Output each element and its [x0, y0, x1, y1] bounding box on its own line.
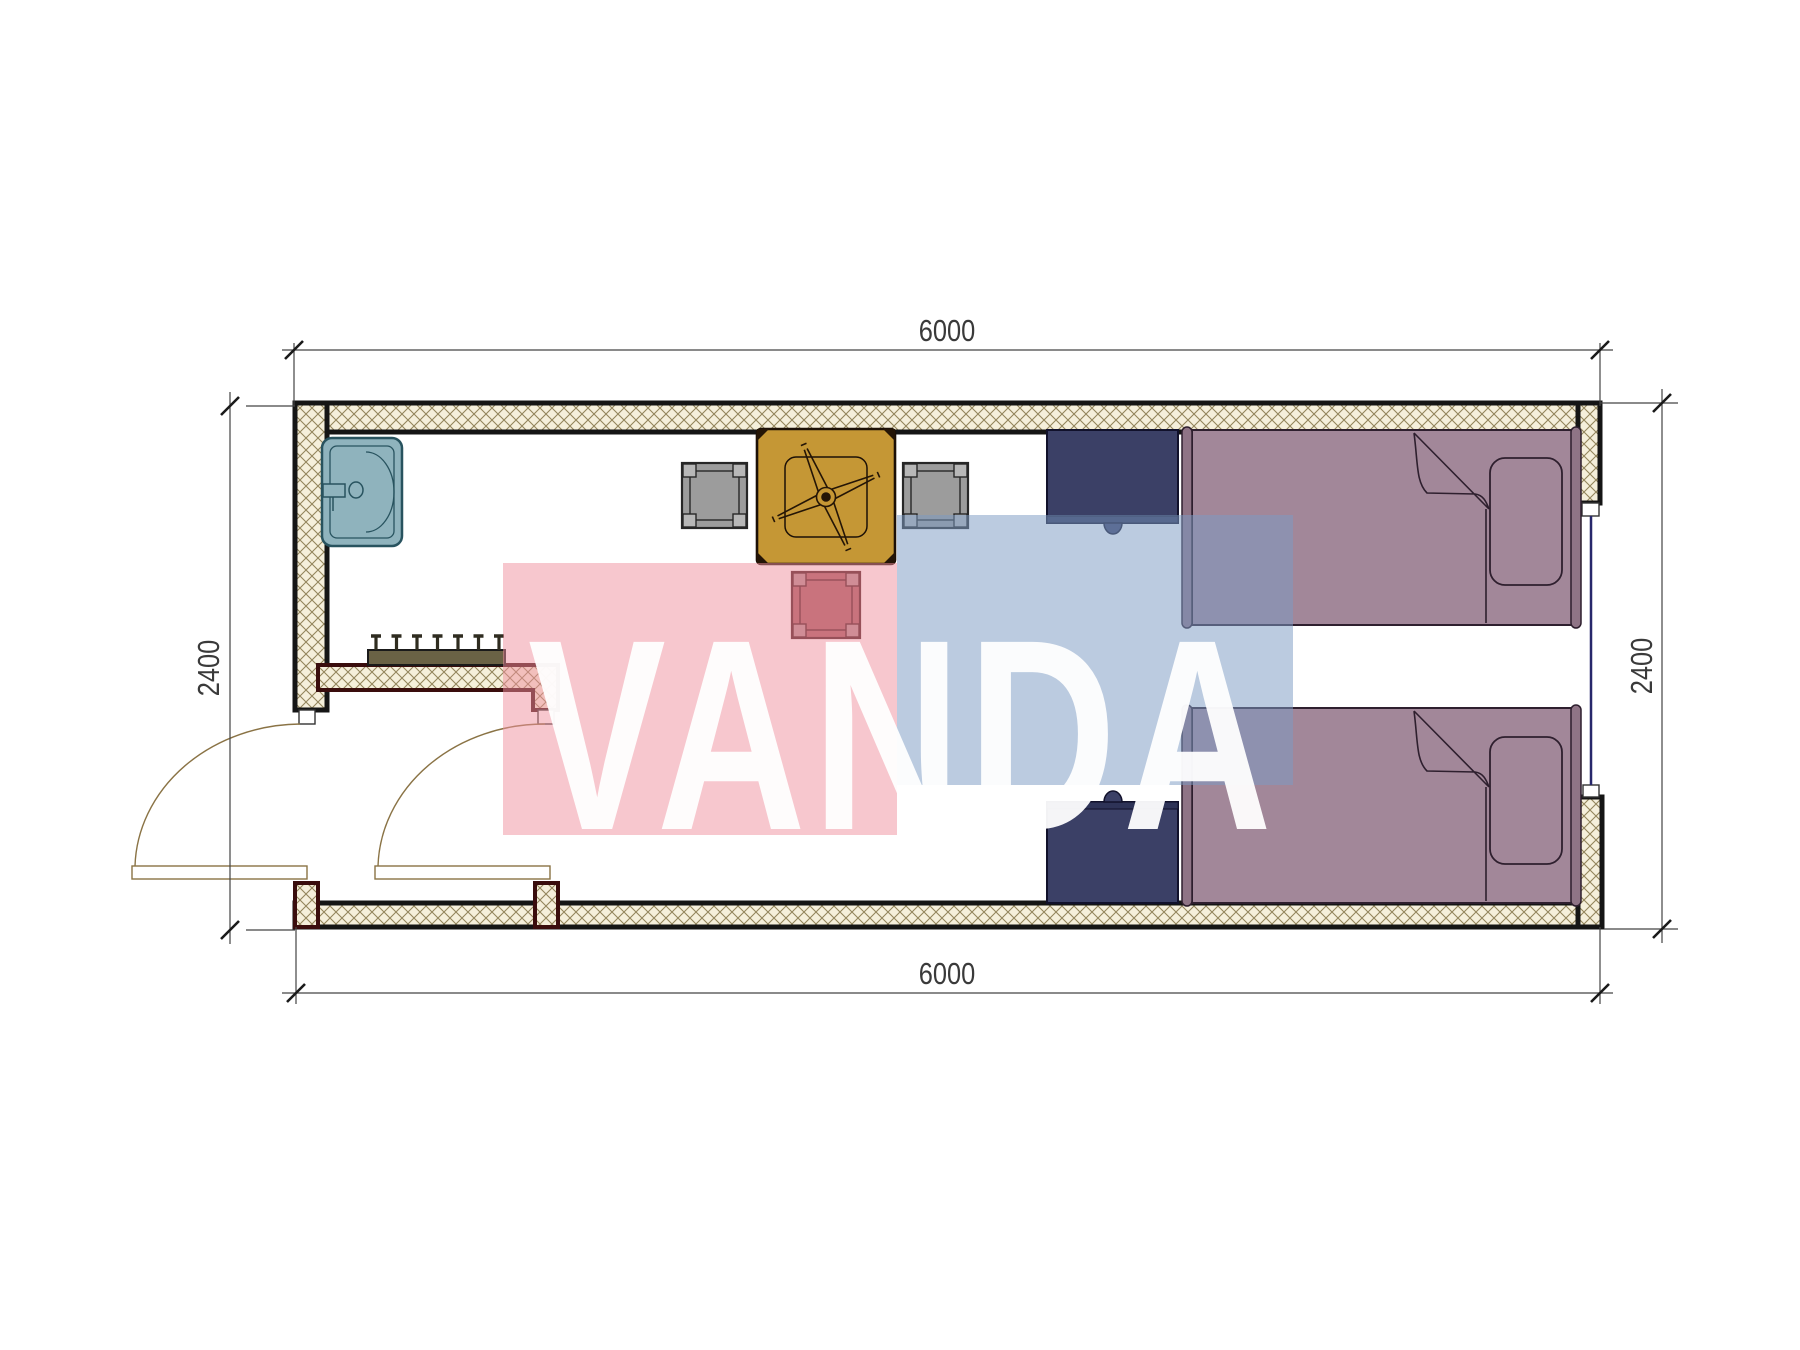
dimension-top — [282, 341, 1613, 406]
bed-1-headboard — [1571, 427, 1581, 628]
window-frame-bottom — [1583, 785, 1599, 797]
door-jamb-pier-mid — [535, 883, 558, 927]
door-frame-left — [299, 710, 315, 724]
door-swing-left — [135, 724, 300, 866]
dim-bottom-label: 6000 — [919, 957, 976, 992]
coat-hooks — [376, 637, 499, 650]
bed-2-pillow — [1490, 737, 1562, 864]
dim-right-label: 2400 — [1625, 638, 1660, 695]
coat-rack — [368, 636, 505, 665]
dim-left-label: 2400 — [192, 640, 227, 697]
bed-1-pillow — [1490, 458, 1562, 585]
sink — [322, 438, 402, 546]
top-wall — [295, 403, 1600, 432]
watermark-text: VANDA — [528, 584, 1278, 888]
door-leaf-mid — [375, 866, 550, 879]
dimension-left — [221, 392, 295, 944]
chair-left — [682, 463, 747, 528]
bed-2-headboard — [1571, 705, 1581, 906]
floor-plan-canvas: 6000 6000 2400 2400 VANDA — [0, 0, 1800, 1350]
door-leaf-left — [132, 866, 307, 879]
dim-top-label: 6000 — [919, 314, 976, 349]
door-jamb-pier-left — [295, 883, 318, 927]
sink-drain-icon — [349, 482, 363, 498]
bottom-wall — [295, 903, 1600, 927]
sink-faucet-icon — [323, 484, 345, 497]
doors — [132, 724, 550, 879]
dining-table — [757, 429, 895, 564]
window-frame-top — [1582, 503, 1599, 516]
